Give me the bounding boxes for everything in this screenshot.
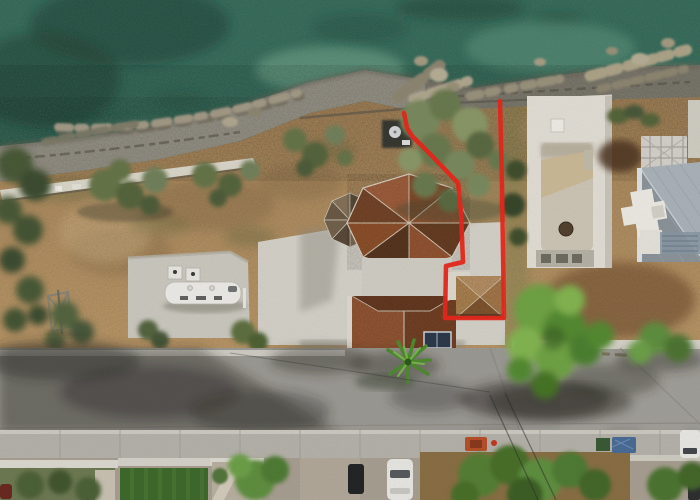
aerial-photo-canvas — [0, 0, 700, 500]
aerial-photo — [0, 0, 700, 500]
photo-grain — [0, 0, 700, 500]
